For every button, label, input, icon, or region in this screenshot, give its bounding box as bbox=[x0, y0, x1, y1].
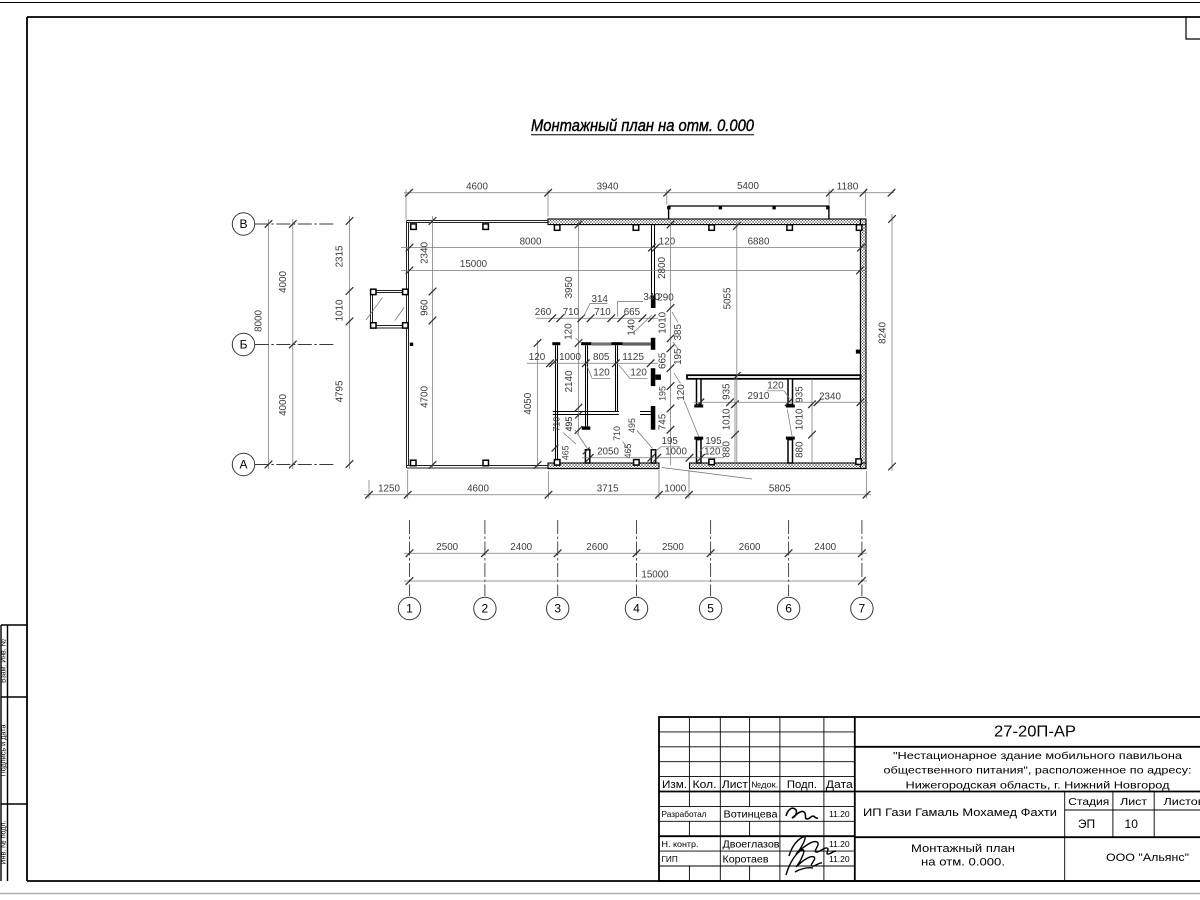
svg-text:805: 805 bbox=[593, 351, 610, 363]
svg-text:2800: 2800 bbox=[656, 257, 668, 279]
svg-text:2400: 2400 bbox=[510, 541, 532, 553]
svg-text:665: 665 bbox=[624, 306, 641, 318]
svg-text:Кол.: Кол. bbox=[693, 779, 717, 791]
svg-text:1000: 1000 bbox=[664, 482, 686, 494]
svg-text:4050: 4050 bbox=[522, 393, 534, 415]
svg-text:11.20: 11.20 bbox=[829, 809, 850, 819]
svg-text:3950: 3950 bbox=[563, 276, 575, 298]
svg-text:ИП Гази Гамаль Мохамед Фахти: ИП Гази Гамаль Мохамед Фахти bbox=[863, 807, 1057, 819]
svg-text:Вотинцева: Вотинцева bbox=[724, 810, 778, 821]
svg-text:340: 340 bbox=[643, 291, 660, 303]
svg-text:1: 1 bbox=[406, 602, 413, 616]
svg-text:120: 120 bbox=[767, 379, 784, 391]
svg-text:2140: 2140 bbox=[563, 370, 575, 392]
svg-text:960: 960 bbox=[419, 299, 431, 316]
svg-text:495: 495 bbox=[627, 418, 638, 433]
svg-text:2910: 2910 bbox=[748, 390, 770, 402]
svg-text:2400: 2400 bbox=[814, 541, 836, 553]
svg-text:Разработал: Разработал bbox=[662, 810, 707, 819]
svg-text:А: А bbox=[239, 458, 247, 472]
svg-text:195: 195 bbox=[672, 348, 684, 365]
svg-text:385: 385 bbox=[672, 324, 684, 341]
svg-text:Коротаев: Коротаев bbox=[723, 855, 769, 866]
svg-text:5055: 5055 bbox=[722, 287, 734, 309]
svg-text:Подпись и дата: Подпись и дата bbox=[0, 725, 8, 777]
svg-text:ГИП: ГИП bbox=[662, 855, 678, 864]
svg-text:710: 710 bbox=[552, 417, 563, 432]
svg-text:"Нестационарное здание мобильн: "Нестационарное здание мобильного павиль… bbox=[893, 750, 1182, 762]
svg-text:Инв. № подл.: Инв. № подл. bbox=[0, 821, 8, 865]
svg-text:4600: 4600 bbox=[466, 181, 488, 193]
svg-text:4000: 4000 bbox=[277, 394, 289, 416]
svg-text:3: 3 bbox=[554, 602, 561, 616]
svg-text:1000: 1000 bbox=[665, 446, 687, 458]
svg-text:4795: 4795 bbox=[334, 380, 346, 402]
svg-text:5: 5 bbox=[707, 602, 714, 616]
svg-text:Б: Б bbox=[240, 338, 248, 352]
svg-text:710: 710 bbox=[594, 306, 611, 318]
svg-text:2340: 2340 bbox=[419, 242, 431, 264]
svg-text:120: 120 bbox=[659, 235, 676, 247]
svg-text:7: 7 bbox=[859, 602, 866, 616]
svg-text:6: 6 bbox=[785, 602, 792, 616]
svg-text:120: 120 bbox=[593, 366, 610, 378]
svg-text:5805: 5805 bbox=[769, 482, 791, 494]
svg-text:Нижегородская область, г. Нижн: Нижегородская область, г. Нижний Новгоро… bbox=[906, 780, 1170, 792]
svg-text:15000: 15000 bbox=[641, 569, 668, 581]
svg-text:6880: 6880 bbox=[748, 235, 770, 247]
svg-text:Листов: Листов bbox=[1164, 797, 1200, 808]
svg-text:8000: 8000 bbox=[520, 235, 542, 247]
svg-text:2600: 2600 bbox=[586, 541, 608, 553]
svg-text:120: 120 bbox=[675, 384, 687, 401]
svg-text:935: 935 bbox=[721, 383, 733, 400]
svg-text:3715: 3715 bbox=[597, 482, 619, 494]
svg-text:1125: 1125 bbox=[622, 351, 644, 363]
svg-text:120: 120 bbox=[704, 446, 721, 458]
svg-text:Подп.: Подп. bbox=[787, 779, 817, 791]
svg-text:2: 2 bbox=[482, 602, 489, 616]
svg-text:11.20: 11.20 bbox=[829, 839, 850, 849]
svg-text:2050: 2050 bbox=[597, 445, 619, 457]
svg-text:2500: 2500 bbox=[662, 541, 684, 553]
svg-text:4: 4 bbox=[633, 602, 640, 616]
svg-text:10: 10 bbox=[1125, 817, 1139, 831]
svg-text:общественного питания", распол: общественного питания", расположенное по… bbox=[884, 765, 1192, 777]
svg-text:Изм.: Изм. bbox=[662, 779, 687, 791]
svg-text:1010: 1010 bbox=[334, 299, 346, 321]
svg-text:2340: 2340 bbox=[819, 390, 841, 402]
svg-text:880: 880 bbox=[721, 441, 733, 458]
svg-text:665: 665 bbox=[656, 352, 668, 369]
svg-text:710: 710 bbox=[563, 306, 580, 318]
svg-text:2600: 2600 bbox=[739, 541, 761, 553]
svg-text:27-20П-АР: 27-20П-АР bbox=[994, 724, 1076, 741]
svg-text:4000: 4000 bbox=[277, 271, 289, 293]
svg-text:15000: 15000 bbox=[460, 258, 487, 270]
svg-text:2315: 2315 bbox=[334, 245, 346, 267]
svg-text:195: 195 bbox=[657, 386, 668, 401]
svg-text:2500: 2500 bbox=[436, 541, 458, 553]
svg-text:8240: 8240 bbox=[877, 322, 889, 344]
svg-text:Стадия: Стадия bbox=[1068, 797, 1109, 808]
svg-text:120: 120 bbox=[563, 323, 575, 340]
svg-text:8000: 8000 bbox=[253, 310, 265, 332]
svg-text:120: 120 bbox=[529, 351, 546, 363]
svg-text:1010: 1010 bbox=[794, 408, 806, 430]
svg-text:935: 935 bbox=[794, 386, 806, 403]
svg-text:495: 495 bbox=[564, 417, 575, 432]
svg-text:4600: 4600 bbox=[467, 482, 489, 494]
svg-text:1010: 1010 bbox=[721, 408, 733, 430]
svg-text:на отм. 0.000.: на отм. 0.000. bbox=[921, 857, 1005, 869]
svg-text:260: 260 bbox=[535, 306, 552, 318]
svg-text:880: 880 bbox=[794, 441, 806, 458]
svg-text:№док.: №док. bbox=[751, 779, 778, 789]
svg-text:120: 120 bbox=[630, 366, 647, 378]
svg-text:Монтажный план на отм. 0.000: Монтажный план на отм. 0.000 bbox=[531, 117, 755, 135]
svg-text:745: 745 bbox=[656, 414, 668, 431]
svg-text:195: 195 bbox=[662, 435, 679, 447]
svg-text:В: В bbox=[239, 217, 247, 231]
svg-text:465: 465 bbox=[561, 445, 572, 460]
svg-text:ООО "Альянс": ООО "Альянс" bbox=[1106, 852, 1189, 864]
svg-text:5400: 5400 bbox=[737, 180, 759, 192]
svg-text:140: 140 bbox=[626, 319, 638, 336]
svg-text:710: 710 bbox=[612, 426, 623, 441]
svg-text:Двоеглазов: Двоеглазов bbox=[723, 840, 780, 851]
svg-text:Н. контр.: Н. контр. bbox=[662, 840, 699, 849]
svg-text:Лист: Лист bbox=[722, 779, 748, 791]
svg-text:11.20: 11.20 bbox=[829, 854, 850, 864]
svg-text:4700: 4700 bbox=[419, 386, 431, 408]
svg-text:465: 465 bbox=[623, 444, 634, 459]
svg-text:1180: 1180 bbox=[837, 181, 859, 193]
svg-text:1250: 1250 bbox=[378, 482, 400, 494]
svg-text:Дата: Дата bbox=[826, 779, 854, 791]
svg-text:195: 195 bbox=[705, 435, 722, 447]
svg-text:3940: 3940 bbox=[597, 181, 619, 193]
svg-text:1000: 1000 bbox=[559, 351, 581, 363]
svg-text:Взам. Инв. №: Взам. Инв. № bbox=[0, 639, 8, 683]
svg-text:ЭП: ЭП bbox=[1078, 817, 1095, 831]
svg-text:Лист: Лист bbox=[1120, 797, 1148, 808]
svg-text:Монтажный план: Монтажный план bbox=[911, 843, 1015, 855]
svg-text:1010: 1010 bbox=[656, 312, 668, 334]
